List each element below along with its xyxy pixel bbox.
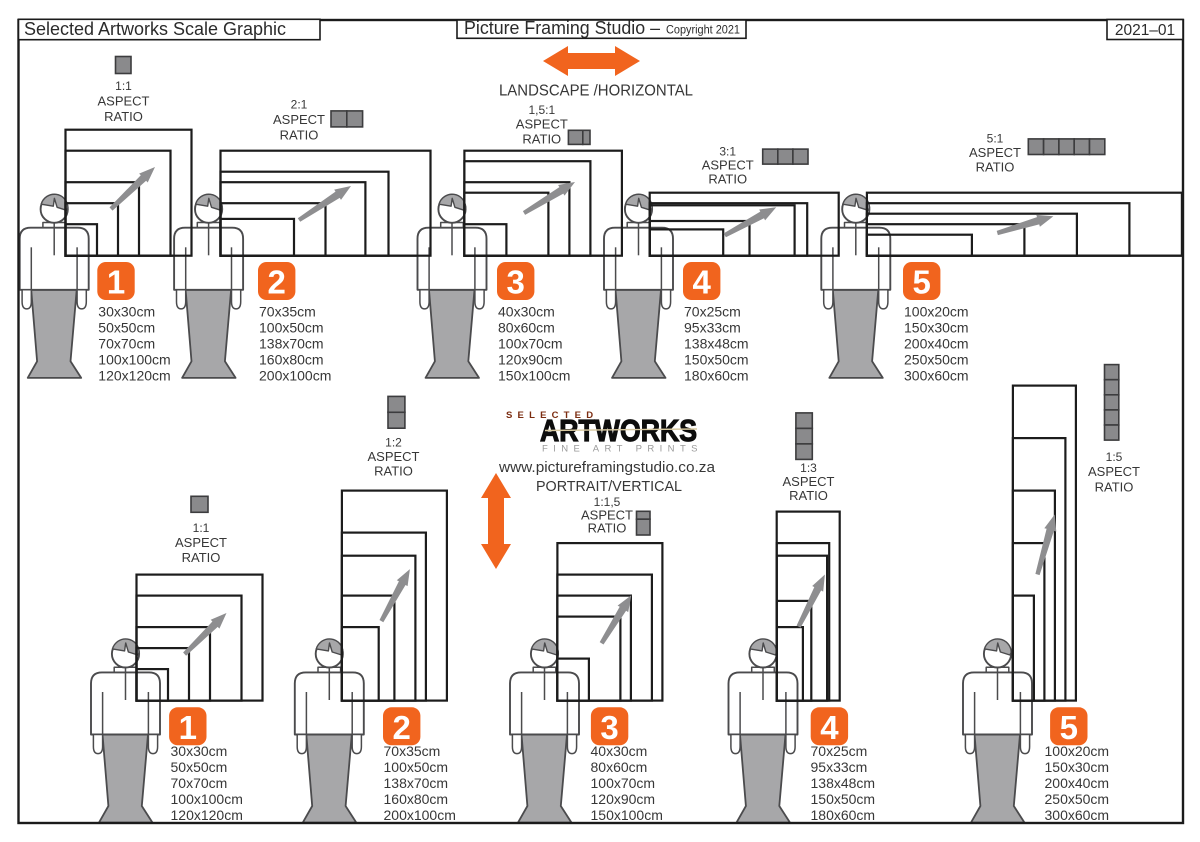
svg-text:30x30cm: 30x30cm [98,304,155,320]
svg-text:200x40cm: 200x40cm [1045,775,1110,791]
svg-text:5:1: 5:1 [987,132,1004,146]
svg-text:50x50cm: 50x50cm [98,320,155,336]
svg-text:120x90cm: 120x90cm [498,352,563,368]
svg-text:70x35cm: 70x35cm [384,743,441,759]
svg-text:150x30cm: 150x30cm [1045,759,1110,775]
svg-text:1:3: 1:3 [800,461,817,475]
svg-text:1:1: 1:1 [115,79,132,93]
svg-text:160x80cm: 160x80cm [259,352,324,368]
svg-text:RATIO: RATIO [708,172,747,187]
svg-text:1: 1 [179,709,197,746]
svg-text:100x100cm: 100x100cm [171,791,243,807]
svg-text:100x50cm: 100x50cm [259,320,324,336]
svg-text:200x100cm: 200x100cm [259,368,331,384]
svg-text:RATIO: RATIO [976,160,1015,175]
svg-text:138x70cm: 138x70cm [384,775,449,791]
svg-text:RATIO: RATIO [374,464,413,479]
svg-text:70x70cm: 70x70cm [171,775,228,791]
svg-text:150x50cm: 150x50cm [811,791,876,807]
svg-text:40x30cm: 40x30cm [498,304,555,320]
svg-text:138x48cm: 138x48cm [684,336,749,352]
svg-text:RATIO: RATIO [1095,480,1134,495]
svg-text:70x70cm: 70x70cm [98,336,155,352]
svg-text:ASPECT: ASPECT [702,158,754,173]
svg-text:RATIO: RATIO [104,109,143,124]
svg-text:120x90cm: 120x90cm [591,791,656,807]
svg-text:ASPECT: ASPECT [97,94,149,109]
svg-text:ASPECT: ASPECT [516,116,568,131]
svg-text:120x120cm: 120x120cm [171,807,243,823]
svg-text:100x100cm: 100x100cm [98,352,170,368]
svg-text:3: 3 [600,709,618,746]
svg-text:FINE ART PRINTS: FINE ART PRINTS [542,444,703,455]
svg-text:Picture Framing Studio –: Picture Framing Studio – [464,18,660,38]
svg-text:70x25cm: 70x25cm [684,304,741,320]
svg-text:80x60cm: 80x60cm [498,320,555,336]
svg-text:30x30cm: 30x30cm [171,743,228,759]
svg-text:5: 5 [1060,709,1078,746]
svg-text:250x50cm: 250x50cm [904,352,969,368]
svg-text:ASPECT: ASPECT [273,112,325,127]
svg-text:RATIO: RATIO [522,131,561,146]
svg-text:www.pictureframingstudio.co.za: www.pictureframingstudio.co.za [498,459,716,476]
svg-text:80x60cm: 80x60cm [591,759,648,775]
svg-text:ASPECT: ASPECT [367,449,419,464]
svg-text:2021–01: 2021–01 [1115,22,1175,39]
svg-text:ASPECT: ASPECT [969,145,1021,160]
svg-text:95x33cm: 95x33cm [684,320,741,336]
svg-text:PORTRAIT/VERTICAL: PORTRAIT/VERTICAL [536,478,682,495]
svg-text:ASPECT: ASPECT [782,474,834,489]
svg-text:RATIO: RATIO [588,520,627,535]
svg-text:180x60cm: 180x60cm [811,807,876,823]
svg-text:100x70cm: 100x70cm [591,775,656,791]
svg-text:70x25cm: 70x25cm [811,743,868,759]
svg-text:180x60cm: 180x60cm [684,368,749,384]
svg-text:LANDSCAPE /HORIZONTAL: LANDSCAPE /HORIZONTAL [499,83,693,100]
svg-text:150x100cm: 150x100cm [498,368,570,384]
svg-text:40x30cm: 40x30cm [591,743,648,759]
svg-text:138x48cm: 138x48cm [811,775,876,791]
svg-text:200x40cm: 200x40cm [904,336,969,352]
svg-text:150x50cm: 150x50cm [684,352,749,368]
svg-text:2: 2 [393,709,411,746]
svg-text:300x60cm: 300x60cm [904,368,969,384]
svg-text:70x35cm: 70x35cm [259,304,316,320]
svg-text:160x80cm: 160x80cm [384,791,449,807]
svg-text:2:1: 2:1 [291,98,308,112]
svg-text:RATIO: RATIO [280,127,319,142]
svg-text:1: 1 [107,264,125,301]
svg-text:3:1: 3:1 [719,145,736,159]
svg-text:300x60cm: 300x60cm [1045,807,1110,823]
svg-text:RATIO: RATIO [789,488,828,503]
svg-text:138x70cm: 138x70cm [259,336,324,352]
svg-text:100x20cm: 100x20cm [904,304,969,320]
svg-text:1:5: 1:5 [1106,450,1123,464]
svg-text:100x70cm: 100x70cm [498,336,563,352]
svg-text:1:2: 1:2 [385,436,402,450]
svg-text:1:1: 1:1 [193,521,210,535]
svg-text:2: 2 [268,264,286,301]
svg-text:Selected Artworks Scale Graphi: Selected Artworks Scale Graphic [24,19,286,39]
svg-text:120x120cm: 120x120cm [98,368,170,384]
svg-text:150x30cm: 150x30cm [904,320,969,336]
svg-text:4: 4 [693,264,712,301]
svg-text:95x33cm: 95x33cm [811,759,868,775]
svg-text:5: 5 [913,264,931,301]
svg-text:100x50cm: 100x50cm [384,759,449,775]
svg-text:200x100cm: 200x100cm [384,807,456,823]
svg-text:3: 3 [507,264,525,301]
svg-text:ASPECT: ASPECT [1088,464,1140,479]
svg-text:ASPECT: ASPECT [175,535,227,550]
svg-text:4: 4 [820,709,839,746]
svg-text:RATIO: RATIO [182,550,221,565]
svg-text:100x20cm: 100x20cm [1045,743,1110,759]
svg-text:Copyright 2021: Copyright 2021 [666,25,740,37]
svg-text:250x50cm: 250x50cm [1045,791,1110,807]
svg-text:50x50cm: 50x50cm [171,759,228,775]
svg-text:1,5:1: 1,5:1 [528,103,555,117]
svg-text:150x100cm: 150x100cm [591,807,663,823]
